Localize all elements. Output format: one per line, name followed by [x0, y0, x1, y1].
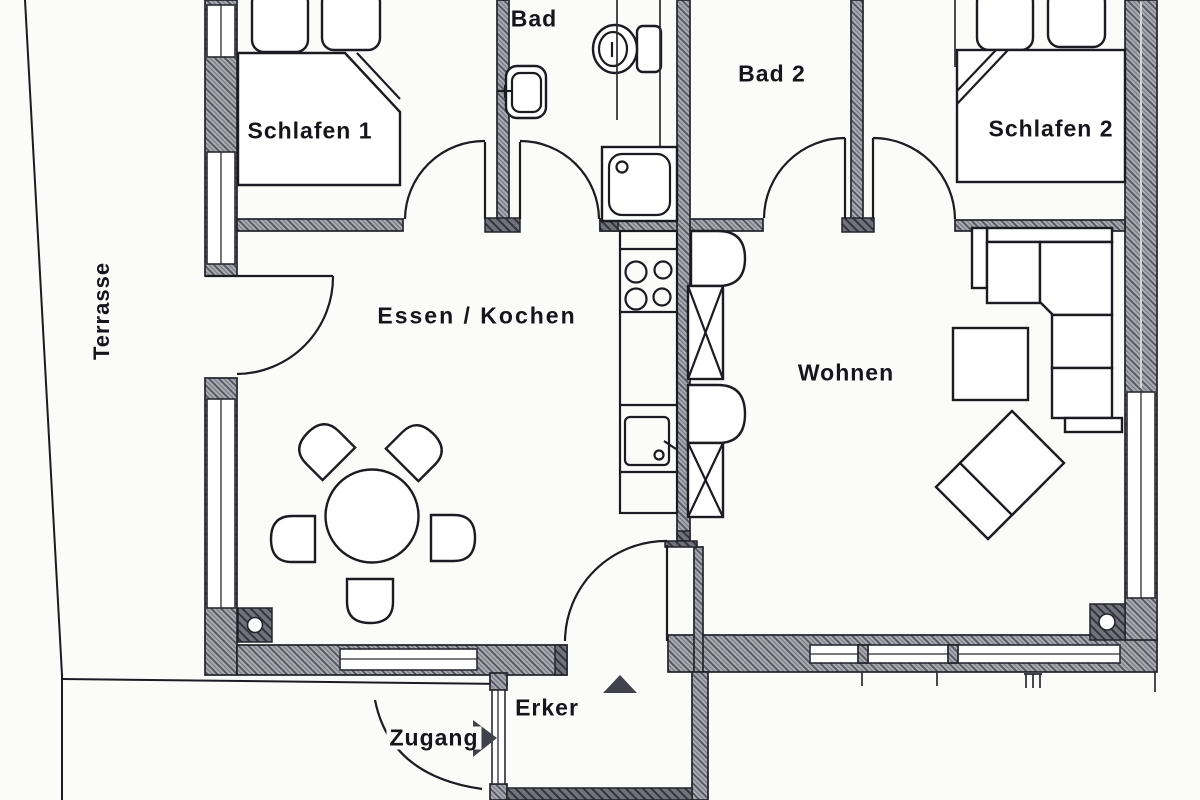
room-label-schlafen-1: Schlafen 1 [247, 120, 372, 143]
room-label-terrasse: Terrasse [91, 262, 113, 360]
dining-table [326, 470, 419, 563]
kitchen-sink-icon [625, 417, 676, 465]
coffee-table [953, 328, 1028, 400]
bad-door-arc [520, 141, 599, 219]
entrance-door-arc [565, 541, 667, 641]
room-label-zugang: Zugang [386, 727, 481, 750]
pillow [322, 0, 380, 50]
schlafen1-door-arc [405, 141, 485, 219]
chair [291, 416, 355, 480]
room-label-bad-2: Bad 2 [738, 63, 806, 86]
chair [386, 417, 450, 481]
chair [431, 515, 475, 561]
cooktop-icon [626, 262, 672, 310]
shower-icon [602, 147, 677, 221]
column-southeast [1090, 604, 1125, 640]
chair [347, 579, 393, 623]
chair [271, 516, 315, 562]
pillow [1048, 0, 1105, 47]
room-label-essen-kochen: Essen / Kochen [377, 305, 576, 328]
dining-set [271, 416, 475, 623]
room-label-schlafen-2: Schlafen 2 [988, 118, 1113, 141]
column-southwest [238, 608, 272, 642]
room-label-erker: Erker [515, 697, 579, 720]
entry-marker-triangle [603, 675, 637, 693]
toilet-icon [593, 25, 661, 73]
room-label-bad: Bad [511, 8, 557, 31]
pillow [252, 0, 308, 52]
floor-plan-scan: Terrasse Schlafen 1 Bad Bad 2 Schlafen 2… [0, 0, 1200, 800]
schlafen2-door-arc [873, 138, 955, 219]
kitchen-counter [620, 231, 677, 513]
terrace-door-arc [205, 276, 333, 374]
rug-diamonds [936, 411, 1064, 539]
bed-schlafen-1 [238, 0, 400, 185]
room-label-wohnen: Wohnen [798, 362, 894, 385]
bed-schlafen-2 [957, 0, 1125, 182]
pillow [977, 0, 1033, 50]
wardrobe-cabinets [688, 231, 745, 517]
dimension-ticks [862, 672, 1155, 692]
bad2-door-arc [764, 138, 845, 218]
